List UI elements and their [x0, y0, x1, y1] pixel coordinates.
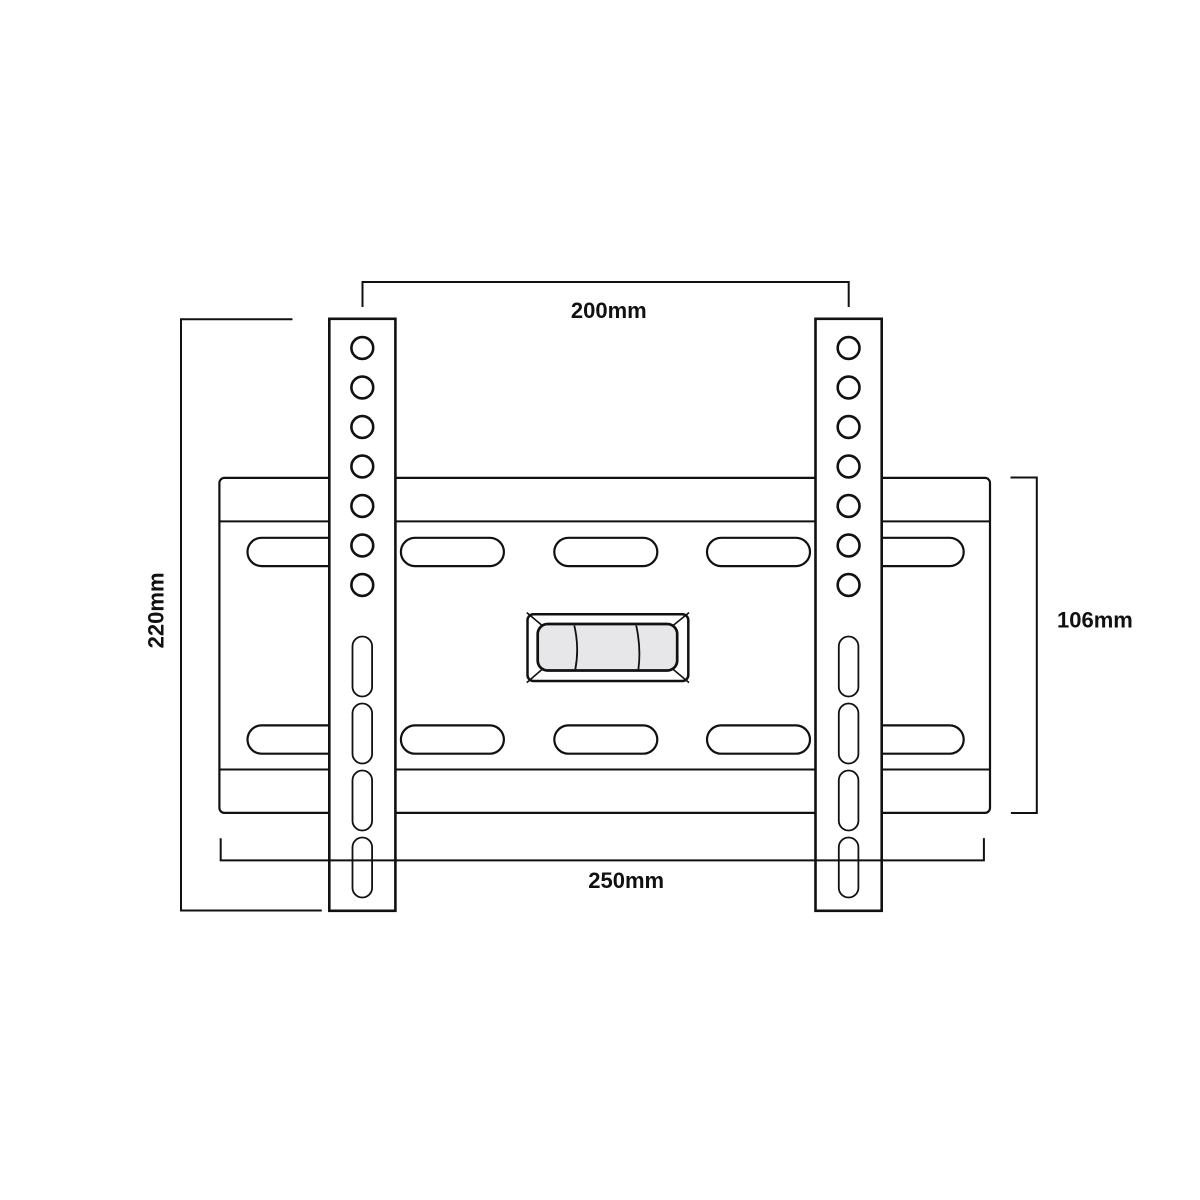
svg-text:220mm: 220mm: [144, 572, 169, 648]
svg-text:106mm: 106mm: [1057, 608, 1133, 633]
svg-text:200mm: 200mm: [571, 298, 647, 323]
svg-text:250mm: 250mm: [588, 868, 664, 893]
